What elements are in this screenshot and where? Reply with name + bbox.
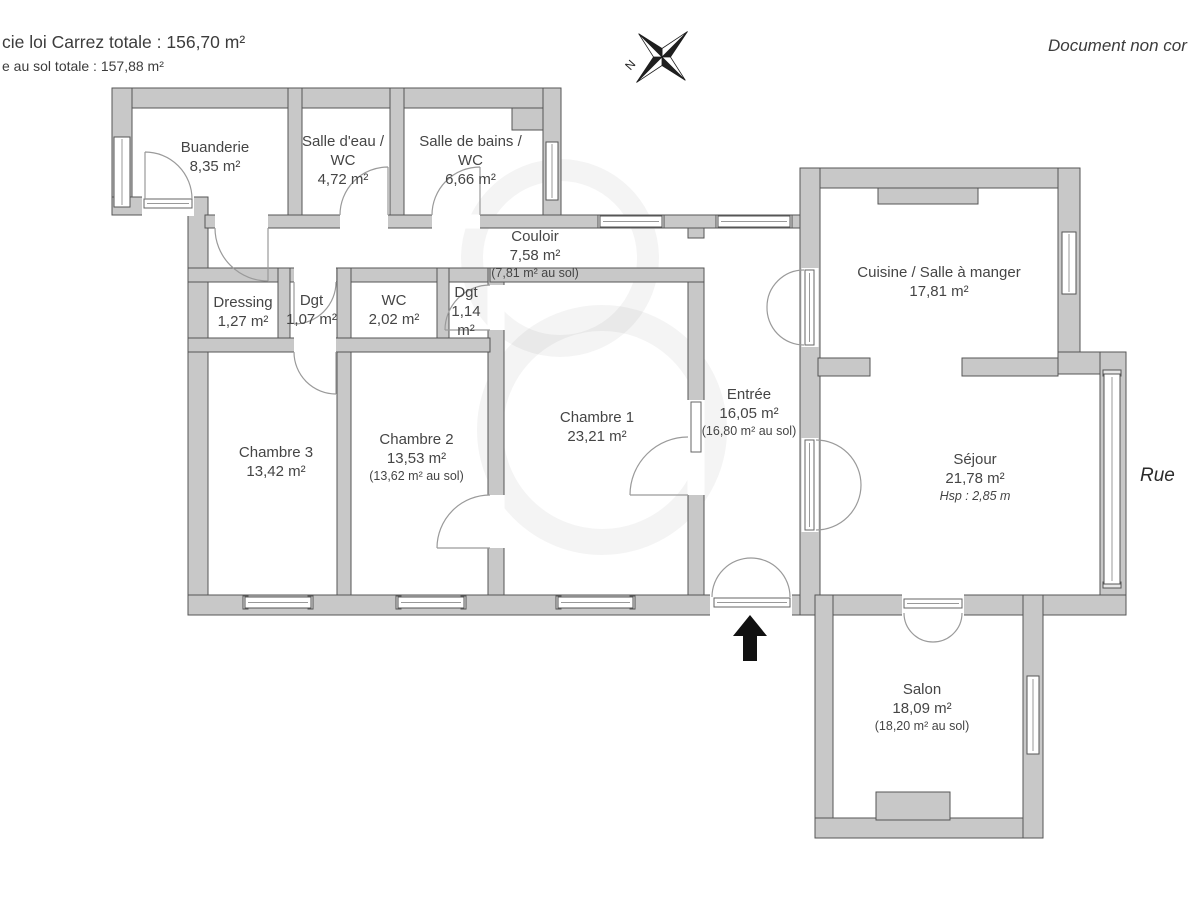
room-label-dgt-2: Dgt 1,14 m² [444, 283, 488, 341]
room-label-buanderie: Buanderie 8,35 m² [135, 138, 295, 176]
room-label-sejour: Séjour 21,78 m² Hsp : 2,85 m [880, 450, 1070, 504]
room-label-salle-deau: Salle d'eau / WC 4,72 m² [295, 132, 391, 190]
room-label-chambre-3: Chambre 3 13,42 m² [206, 443, 346, 481]
entrance-arrow-icon [733, 615, 767, 661]
room-label-salon: Salon 18,09 m² (18,20 m² au sol) [828, 680, 1016, 734]
room-label-chambre-2: Chambre 2 13,53 m² (13,62 m² au sol) [344, 430, 489, 484]
room-label-entree: Entrée 16,05 m² (16,80 m² au sol) [698, 385, 800, 439]
room-label-cuisine: Cuisine / Salle à manger 17,81 m² [824, 263, 1054, 301]
floor-plan-page: cie loi Carrez totale : 156,70 m² e au s… [0, 0, 1200, 900]
room-label-chambre-1: Chambre 1 23,21 m² [518, 408, 676, 446]
floor-area-total: e au sol totale : 157,88 m² [2, 58, 164, 74]
room-label-dgt-1: Dgt 1,07 m² [284, 291, 339, 329]
room-label-salle-de-bains: Salle de bains / WC 6,66 m² [398, 132, 543, 190]
street-label: Rue [1140, 465, 1175, 487]
carrez-area-total: cie loi Carrez totale : 156,70 m² [2, 32, 245, 53]
room-label-couloir: Couloir 7,58 m² (7,81 m² au sol) [455, 227, 615, 281]
room-label-wc: WC 2,02 m² [348, 291, 440, 329]
disclaimer-text: Document non cor [1048, 36, 1187, 56]
room-label-dressing: Dressing 1,27 m² [203, 293, 283, 331]
